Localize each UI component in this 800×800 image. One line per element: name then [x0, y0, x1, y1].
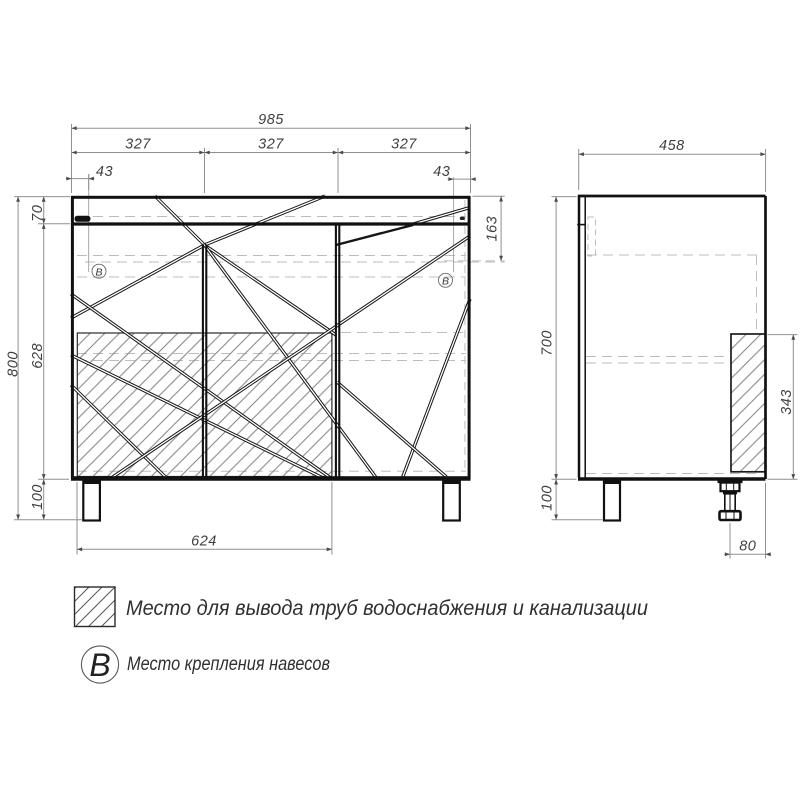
svg-text:628: 628 — [30, 343, 46, 369]
svg-text:100: 100 — [540, 485, 556, 511]
svg-text:624: 624 — [191, 533, 217, 549]
svg-text:Место крепления навесов: Место крепления навесов — [127, 654, 330, 675]
svg-text:43: 43 — [433, 164, 450, 180]
svg-text:985: 985 — [258, 112, 284, 128]
svg-text:800: 800 — [6, 351, 22, 377]
svg-text:327: 327 — [125, 137, 151, 153]
svg-text:100: 100 — [30, 484, 46, 510]
svg-text:80: 80 — [739, 539, 756, 555]
svg-text:343: 343 — [779, 389, 795, 415]
svg-text:B: B — [442, 276, 449, 288]
svg-text:327: 327 — [258, 137, 284, 153]
svg-text:43: 43 — [96, 164, 113, 180]
svg-text:Место для вывода труб водоснаб: Место для вывода труб водоснабжения и ка… — [126, 597, 648, 620]
svg-text:70: 70 — [30, 205, 46, 222]
svg-text:327: 327 — [391, 137, 417, 153]
svg-text:B: B — [95, 266, 102, 278]
svg-text:700: 700 — [540, 330, 556, 356]
svg-text:B: B — [89, 647, 110, 683]
svg-text:458: 458 — [659, 138, 685, 154]
svg-text:163: 163 — [485, 216, 501, 242]
